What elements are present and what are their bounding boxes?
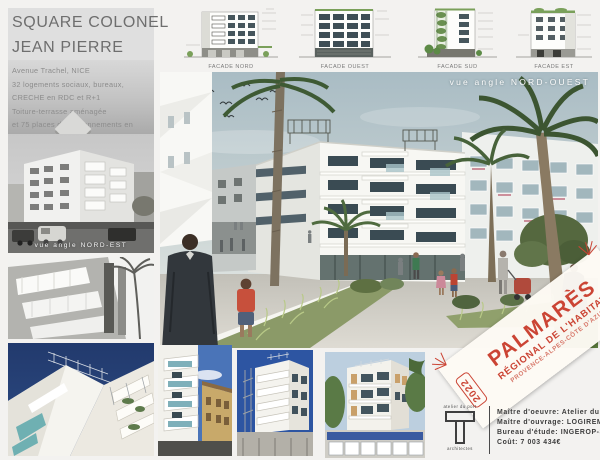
facade-drawing-west: FACADE OUEST (295, 5, 395, 71)
facade-label-west: FACADE OUEST (295, 64, 395, 70)
photo-caption-northeast: vue angle NORD-EST (8, 242, 154, 249)
desc-line: CRECHE en RDC et R+1 (12, 91, 154, 105)
credit-line: Maître d'oeuvre: Atelier du Port (497, 408, 599, 418)
architect-logo: atelier du port architectes (437, 404, 483, 456)
credits-divider (489, 406, 490, 454)
credit-line: Bureau d'étude: INGEROP-SLK (497, 428, 599, 438)
photo-bottom-1 (158, 345, 232, 456)
facade-label-east: FACADE EST (513, 64, 595, 70)
photo-bottom-2 (237, 350, 313, 456)
title-line-2: JEAN PIERRE (12, 35, 154, 60)
photo-bottom-3 (325, 352, 425, 458)
facade-label-north: FACADE NORD (178, 64, 284, 70)
project-title: SQUARE COLONEL JEAN PIERRE (8, 8, 154, 60)
facade-drawing-south: FACADE SUD (415, 5, 500, 71)
render-building-left (160, 72, 212, 247)
logo-top-text: atelier du port (437, 404, 483, 409)
logo-t-stem-icon (455, 421, 465, 444)
old-building (202, 381, 232, 445)
logo-bottom-text: architectes (437, 446, 483, 451)
photo-balcony-detail (8, 257, 154, 339)
facade-drawing-east: FACADE EST (513, 5, 595, 71)
credit-line: Maître d'ouvrage: LOGIREM (497, 418, 599, 428)
facade-label-south: FACADE SUD (415, 64, 500, 70)
render-caption-northwest: vue angle NORD-OUEST (450, 77, 590, 87)
facade-drawing-north: FACADE NORD (178, 5, 284, 71)
credits-block: Maître d'oeuvre: Atelier du Port Maître … (497, 408, 599, 448)
credit-line: Coût: 7 003 434€ (497, 438, 599, 448)
desc-line: Avenue Trachel, NICE (12, 64, 154, 78)
building-wood-panels (347, 359, 409, 434)
white-balconies (158, 345, 198, 456)
render-street (212, 164, 256, 272)
bw-building (24, 150, 134, 226)
photo-corner-sky (8, 343, 154, 456)
desc-line: 32 logements sociaux, bureaux, (12, 78, 154, 92)
photo-northeast-view: vue angle NORD-EST (8, 134, 154, 253)
desc-line: Toiture-terrasse aménagée (12, 105, 154, 119)
title-line-1: SQUARE COLONEL (12, 10, 154, 35)
project-description: Avenue Trachel, NICE 32 logements sociau… (8, 60, 154, 134)
presentation-board: SQUARE COLONEL JEAN PIERRE Avenue Trache… (0, 0, 600, 460)
